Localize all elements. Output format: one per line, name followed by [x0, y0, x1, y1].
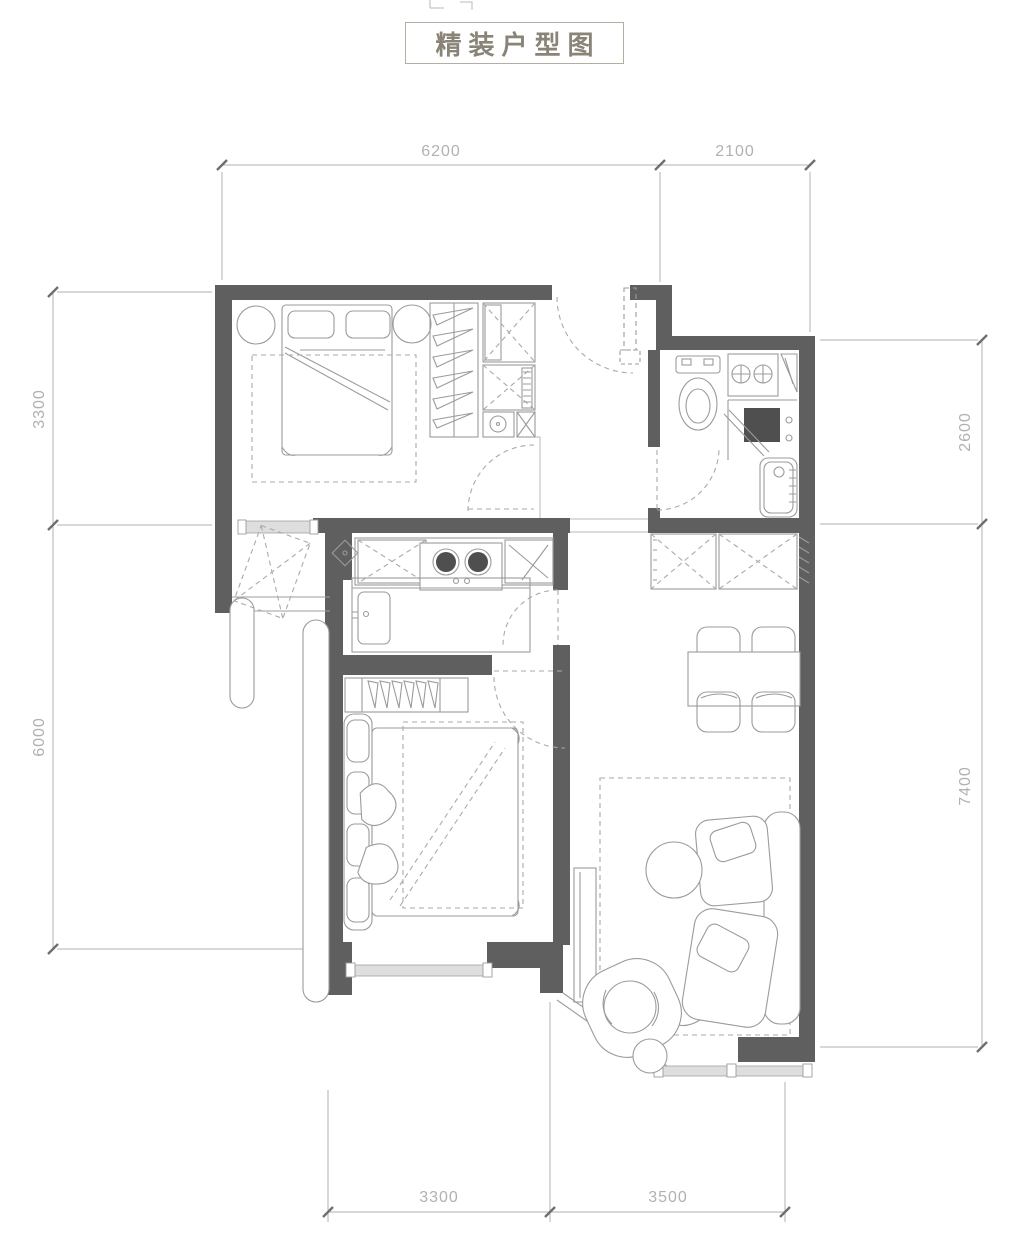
- dimension-top: 6200 2100: [217, 143, 815, 332]
- floor-plan-page: 精装户型图 6200 2100 3300: [0, 0, 1026, 1236]
- dim-bottom-2: 3500: [648, 1189, 688, 1206]
- vanity-basin-icon: [728, 354, 778, 396]
- kitchen-balcony: [234, 526, 310, 619]
- shower-icon: [724, 400, 797, 460]
- bedroom1-door: [468, 437, 540, 518]
- bathtub-icon: [760, 458, 797, 517]
- wardrobe-hangers-icon: [430, 303, 478, 437]
- lamp-icon: [393, 305, 431, 343]
- dim-left-1: 3300: [31, 389, 48, 429]
- bedroom2: [344, 678, 523, 930]
- dining-table: [688, 652, 800, 706]
- dim-right-2: 7400: [957, 766, 974, 806]
- pipe-chase: [230, 598, 329, 1002]
- coffee-table-icon: [646, 842, 702, 898]
- side-table-icon: [633, 1039, 667, 1073]
- dim-top-1: 6200: [421, 143, 461, 160]
- dimension-left: 3300 6000: [31, 287, 320, 954]
- corner-shelf: [781, 354, 797, 392]
- bathroom: [676, 354, 797, 517]
- armchair-icon: [571, 947, 693, 1073]
- cropped-artifact: [430, 0, 472, 10]
- wardrobe-hangers-icon: [345, 678, 468, 712]
- double-bed-icon: [282, 305, 392, 455]
- dining-table-icon: [688, 627, 800, 732]
- gas-stove-icon: [420, 543, 502, 590]
- sofa-icon: [670, 812, 800, 1030]
- lamp-icon: [237, 306, 275, 344]
- dim-left-2: 6000: [31, 717, 48, 757]
- dimension-right: 2600 7400: [820, 335, 987, 1052]
- floor-plan: 6200 2100 3300 6000 2600 7400: [0, 0, 1026, 1236]
- fridge: [505, 540, 553, 583]
- entry-door: [557, 288, 640, 373]
- kitchen-sink-icon: [352, 592, 390, 644]
- kitchen: [332, 538, 553, 652]
- hall-cabinets: [651, 534, 809, 589]
- storage-cabinet: [483, 303, 535, 437]
- dim-top-2: 2100: [715, 143, 755, 160]
- dim-right-1: 2600: [957, 412, 974, 452]
- washing-machine-outline: [234, 526, 310, 619]
- dim-bottom-1: 3300: [419, 1189, 459, 1206]
- bedroom1: [237, 303, 535, 482]
- bathroom-door: [657, 448, 719, 510]
- living-room: [571, 778, 800, 1073]
- double-bed-icon: [344, 714, 519, 930]
- toilet-icon: [676, 356, 720, 430]
